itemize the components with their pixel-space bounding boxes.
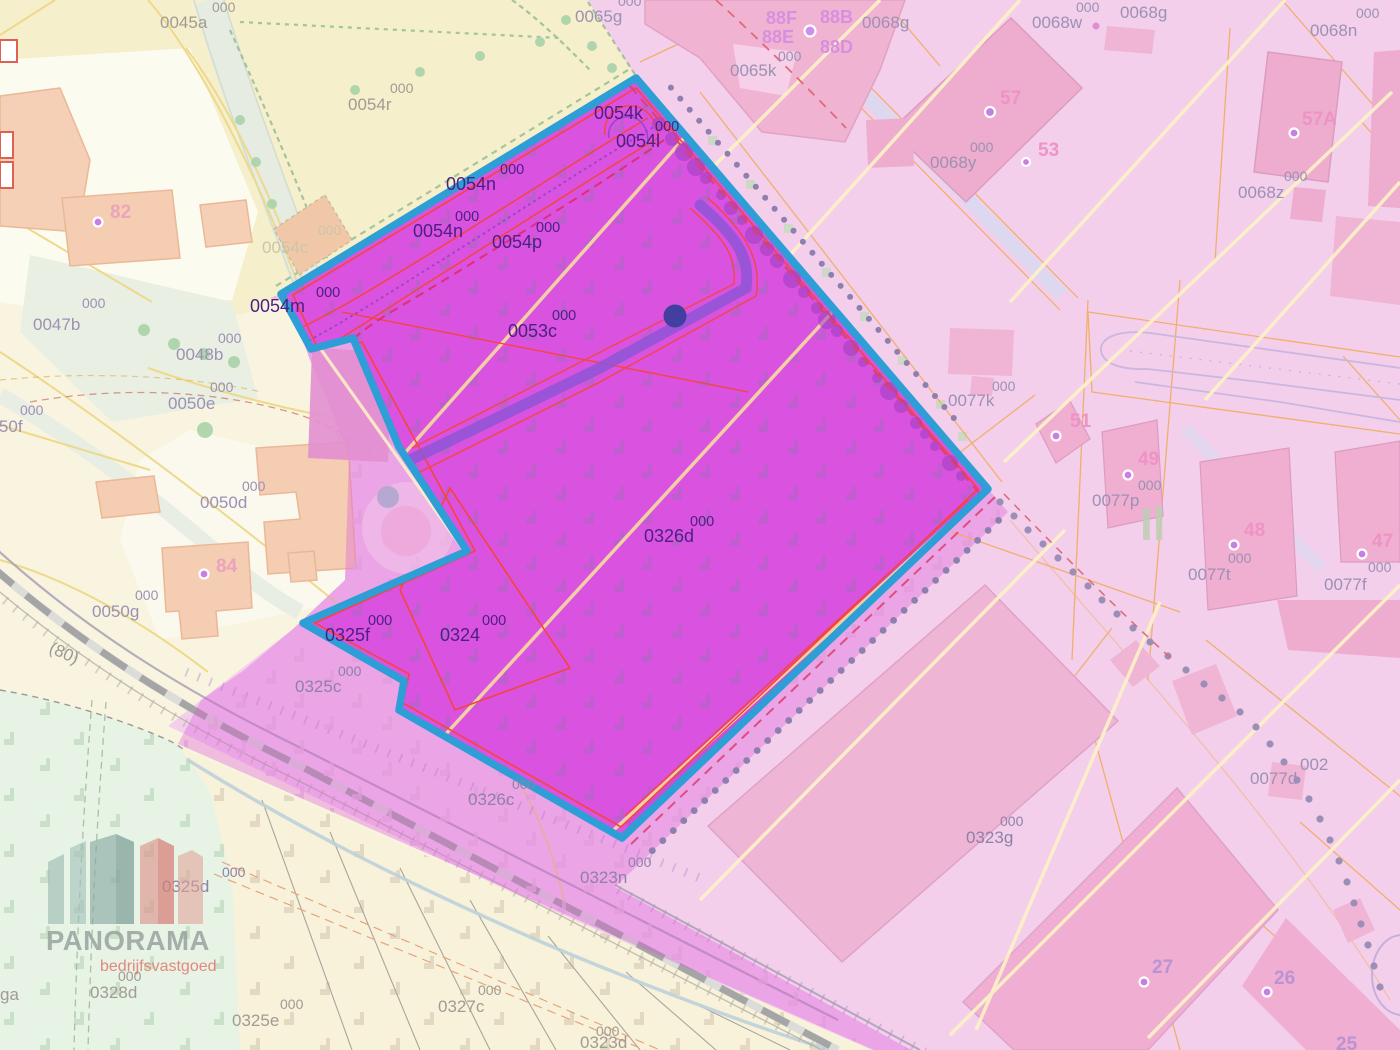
svg-text:0325c: 0325c — [295, 677, 342, 696]
svg-text:0068n: 0068n — [1310, 21, 1357, 40]
svg-text:57: 57 — [1000, 88, 1021, 109]
svg-text:0045a: 0045a — [160, 13, 208, 32]
svg-text:000: 000 — [222, 864, 246, 880]
svg-text:0325f: 0325f — [325, 625, 371, 645]
svg-text:0068y: 0068y — [930, 153, 977, 172]
svg-text:PANORAMA: PANORAMA — [46, 925, 210, 956]
svg-text:000: 000 — [536, 220, 560, 236]
svg-text:0050e: 0050e — [168, 394, 215, 413]
svg-text:0065g: 0065g — [575, 7, 622, 26]
svg-text:000: 000 — [390, 80, 414, 96]
svg-text:0077d: 0077d — [1250, 769, 1297, 788]
svg-text:0054r: 0054r — [348, 95, 392, 114]
svg-text:25: 25 — [1336, 1034, 1358, 1050]
svg-text:27: 27 — [1152, 957, 1173, 978]
svg-text:000: 000 — [242, 478, 266, 494]
svg-text:0047b: 0047b — [33, 315, 80, 334]
svg-text:000: 000 — [135, 587, 159, 603]
svg-text:0077k: 0077k — [948, 391, 995, 410]
svg-text:0068g: 0068g — [862, 13, 909, 32]
svg-text:0326d: 0326d — [644, 526, 694, 546]
svg-text:000: 000 — [218, 330, 242, 346]
svg-text:0323n: 0323n — [580, 868, 627, 887]
svg-text:84: 84 — [216, 556, 238, 577]
svg-text:bedrijfsvastgoed: bedrijfsvastgoed — [100, 958, 217, 975]
svg-text:88F: 88F — [766, 8, 797, 28]
svg-text:47: 47 — [1372, 531, 1393, 552]
svg-text:0054l: 0054l — [616, 131, 660, 151]
svg-text:0068g: 0068g — [1120, 3, 1167, 22]
svg-text:000: 000 — [1076, 0, 1100, 15]
svg-text:0077p: 0077p — [1092, 491, 1139, 510]
svg-text:88D: 88D — [820, 37, 853, 57]
svg-text:0325e: 0325e — [232, 1011, 279, 1030]
svg-text:000: 000 — [368, 613, 392, 629]
svg-text:000: 000 — [778, 48, 802, 64]
svg-text:0077f: 0077f — [1324, 575, 1367, 594]
svg-text:000: 000 — [210, 379, 234, 395]
svg-text:000: 000 — [1356, 5, 1380, 21]
svg-text:000: 000 — [455, 209, 479, 225]
svg-text:000: 000 — [1284, 168, 1308, 184]
svg-text:0048b: 0048b — [176, 345, 223, 364]
svg-text:000: 000 — [338, 663, 362, 679]
svg-text:0068w: 0068w — [1032, 13, 1083, 32]
svg-text:0068z: 0068z — [1238, 183, 1284, 202]
svg-text:000: 000 — [280, 996, 304, 1012]
svg-text:000: 000 — [1000, 813, 1024, 829]
svg-text:000: 000 — [655, 119, 679, 135]
svg-text:0077t: 0077t — [1188, 565, 1231, 584]
svg-text:0050g: 0050g — [92, 602, 139, 621]
svg-text:0050d: 0050d — [200, 493, 247, 512]
svg-text:0326c: 0326c — [468, 790, 515, 809]
svg-text:0054c: 0054c — [262, 238, 309, 257]
svg-text:88E: 88E — [762, 27, 794, 47]
svg-text:000: 000 — [500, 162, 524, 178]
svg-text:002: 002 — [1300, 755, 1328, 774]
svg-text:53: 53 — [1038, 140, 1059, 161]
svg-text:49: 49 — [1138, 449, 1159, 470]
svg-text:000: 000 — [82, 295, 106, 311]
svg-text:000: 000 — [970, 139, 994, 155]
svg-text:000: 000 — [1138, 477, 1162, 493]
svg-text:000: 000 — [482, 613, 506, 629]
svg-text:000: 000 — [992, 378, 1016, 394]
svg-text:0054p: 0054p — [492, 232, 542, 252]
svg-text:ga: ga — [0, 985, 19, 1004]
svg-text:57A: 57A — [1302, 109, 1337, 130]
svg-text:000: 000 — [316, 285, 340, 301]
svg-text:51: 51 — [1070, 411, 1092, 432]
svg-text:Il: Il — [1140, 498, 1166, 550]
svg-text:000: 000 — [478, 982, 502, 998]
svg-text:0054n: 0054n — [446, 174, 496, 194]
svg-text:0323g: 0323g — [966, 828, 1013, 847]
svg-text:26: 26 — [1274, 968, 1295, 989]
svg-text:88B: 88B — [820, 7, 853, 27]
svg-text:000: 000 — [512, 776, 536, 792]
svg-text:000: 000 — [618, 0, 642, 9]
svg-text:0324: 0324 — [440, 625, 480, 645]
svg-text:000: 000 — [212, 0, 236, 15]
svg-text:000: 000 — [552, 308, 576, 324]
svg-text:000: 000 — [1228, 550, 1252, 566]
svg-text:000: 000 — [318, 222, 342, 238]
svg-text:0054k: 0054k — [594, 103, 644, 123]
svg-text:0327c: 0327c — [438, 997, 485, 1016]
svg-text:000: 000 — [596, 1023, 620, 1039]
svg-text:000: 000 — [1368, 559, 1392, 575]
svg-text:000: 000 — [690, 514, 714, 530]
svg-text:0054m: 0054m — [250, 296, 305, 316]
svg-text:82: 82 — [110, 202, 131, 223]
svg-text:0328d: 0328d — [90, 983, 137, 1002]
svg-text:48: 48 — [1244, 520, 1265, 541]
svg-text:0053c: 0053c — [508, 321, 557, 341]
svg-text:000: 000 — [628, 854, 652, 870]
svg-text:0065k: 0065k — [730, 61, 777, 80]
svg-text:0050f: 0050f — [0, 417, 23, 436]
svg-text:000: 000 — [20, 402, 44, 418]
